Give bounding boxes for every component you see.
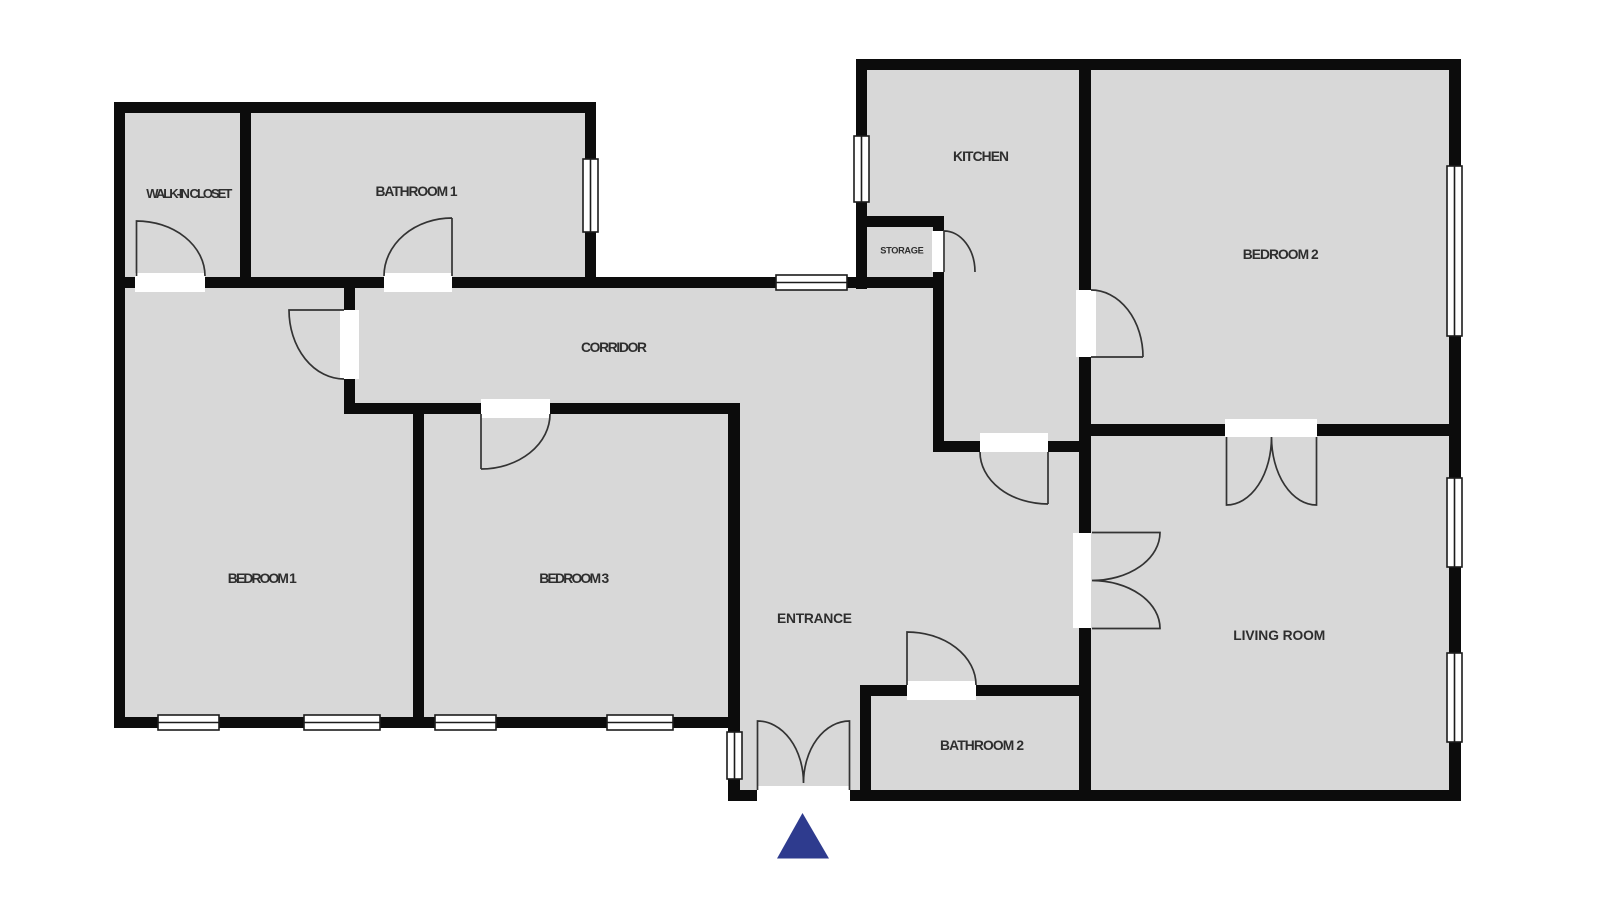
svg-text:LIVING ROOM: LIVING ROOM bbox=[1233, 628, 1325, 643]
svg-text:BATHROOM 2: BATHROOM 2 bbox=[940, 738, 1024, 753]
svg-text:WALK-IN CLOSET: WALK-IN CLOSET bbox=[146, 186, 232, 201]
svg-text:BATHROOM 1: BATHROOM 1 bbox=[376, 184, 458, 199]
svg-text:ENTRANCE: ENTRANCE bbox=[777, 611, 852, 626]
svg-text:BEDROOM 1: BEDROOM 1 bbox=[228, 571, 297, 586]
svg-text:BEDROOM 3: BEDROOM 3 bbox=[539, 571, 609, 586]
svg-text:CORRIDOR: CORRIDOR bbox=[581, 340, 647, 355]
svg-text:BEDROOM 2: BEDROOM 2 bbox=[1243, 247, 1319, 262]
svg-text:KITCHEN: KITCHEN bbox=[953, 149, 1009, 164]
svg-text:STORAGE: STORAGE bbox=[880, 246, 924, 256]
